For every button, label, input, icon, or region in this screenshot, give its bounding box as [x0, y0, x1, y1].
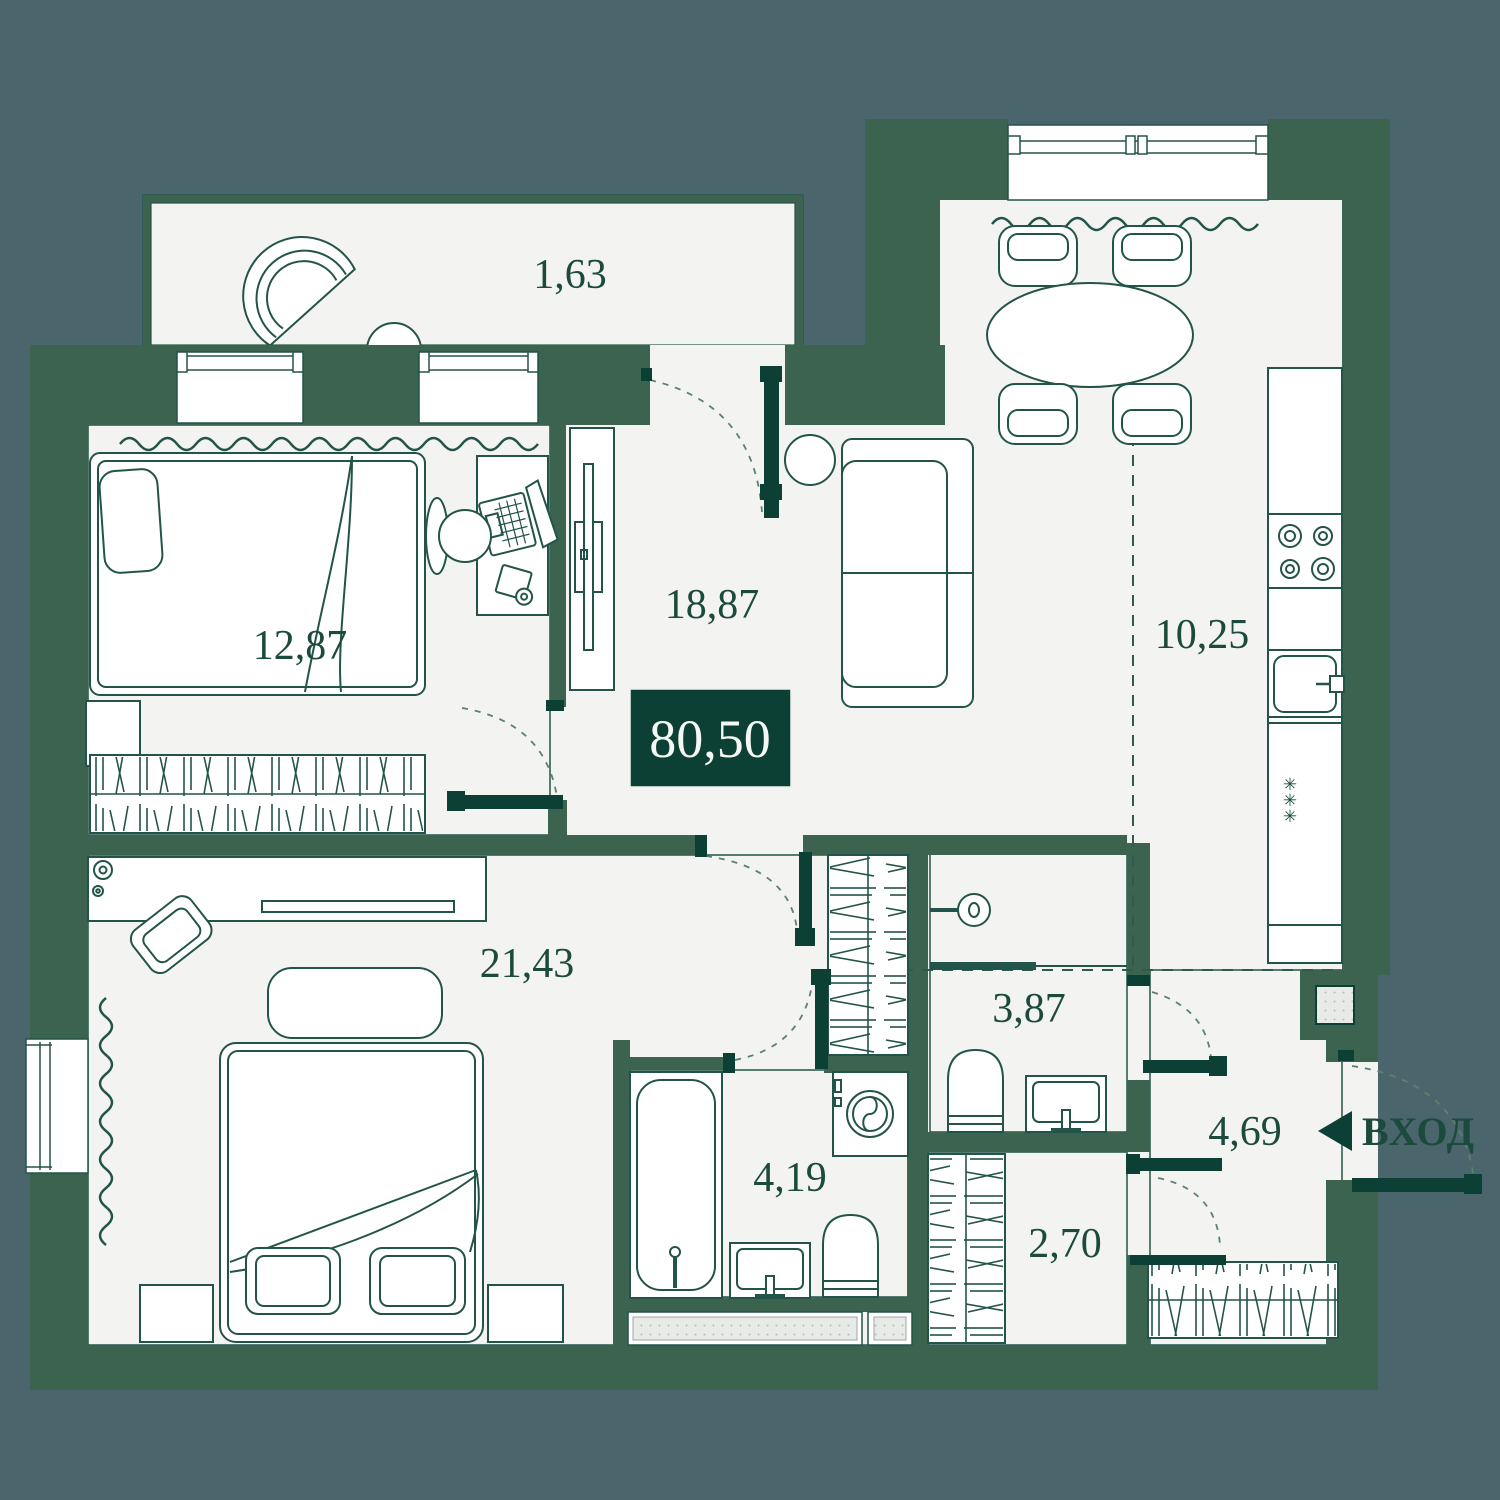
kitchen-counter-icon: ✳ ✳ ✳ [1268, 368, 1344, 963]
room-closet [928, 1154, 1005, 1343]
window-bedroom-2 [26, 1039, 88, 1173]
chair-icon [999, 384, 1077, 444]
wardrobe-icon [90, 755, 425, 833]
toilet-icon [823, 1215, 878, 1297]
room-area-label: 10,25 [1155, 612, 1250, 658]
bathtub-icon [630, 1072, 722, 1298]
svg-text:✳: ✳ [1283, 807, 1297, 826]
floor-plan-page: ✳ ✳ ✳ [0, 0, 1500, 1500]
dining-table-icon [987, 283, 1193, 387]
room-area-label: 4,19 [753, 1155, 827, 1201]
chair-icon [1113, 384, 1191, 444]
nightstand-icon [140, 1285, 213, 1342]
wardrobe-icon [828, 855, 908, 1055]
toilet-icon [948, 1050, 1003, 1132]
room-area-label: 3,87 [992, 986, 1066, 1032]
sink-icon [1026, 1076, 1106, 1132]
chair-icon [999, 226, 1077, 286]
nightstand-icon [488, 1285, 563, 1342]
sink-icon [730, 1243, 810, 1298]
room-hallway [1148, 1262, 1338, 1338]
total-area-badge: 80,50 [630, 689, 791, 787]
vent-shaft [1316, 986, 1354, 1024]
sofa-icon [842, 439, 973, 707]
wardrobe-icon [928, 1154, 1005, 1343]
shoe-wardrobe-icon [1148, 1262, 1338, 1338]
floor-plan: ✳ ✳ ✳ [0, 0, 1500, 1500]
room-area-label: 1,63 [533, 252, 607, 298]
coffee-table-icon [785, 435, 835, 485]
bench-icon [268, 968, 442, 1038]
window-bedroom-1-right [419, 352, 538, 423]
window-bedroom-1-left [177, 352, 303, 423]
room-area-label: 21,43 [480, 941, 575, 987]
room-area-label: 4,69 [1208, 1109, 1282, 1155]
room-area-label: 18,87 [665, 582, 760, 628]
entrance-label: ВХОД [1362, 1109, 1475, 1154]
shower-screen-icon [930, 962, 1036, 970]
washing-machine-icon [833, 1072, 908, 1156]
sink-icon [1274, 656, 1344, 712]
window-kitchen [1008, 125, 1268, 200]
chair-icon [1113, 226, 1191, 286]
tv-console-icon [570, 428, 614, 690]
room-area-label: 12,87 [253, 623, 348, 669]
total-area-value: 80,50 [649, 709, 771, 769]
media-console-icon [88, 857, 486, 921]
room-area-label: 2,70 [1028, 1221, 1102, 1267]
double-bed-icon [220, 1043, 483, 1342]
